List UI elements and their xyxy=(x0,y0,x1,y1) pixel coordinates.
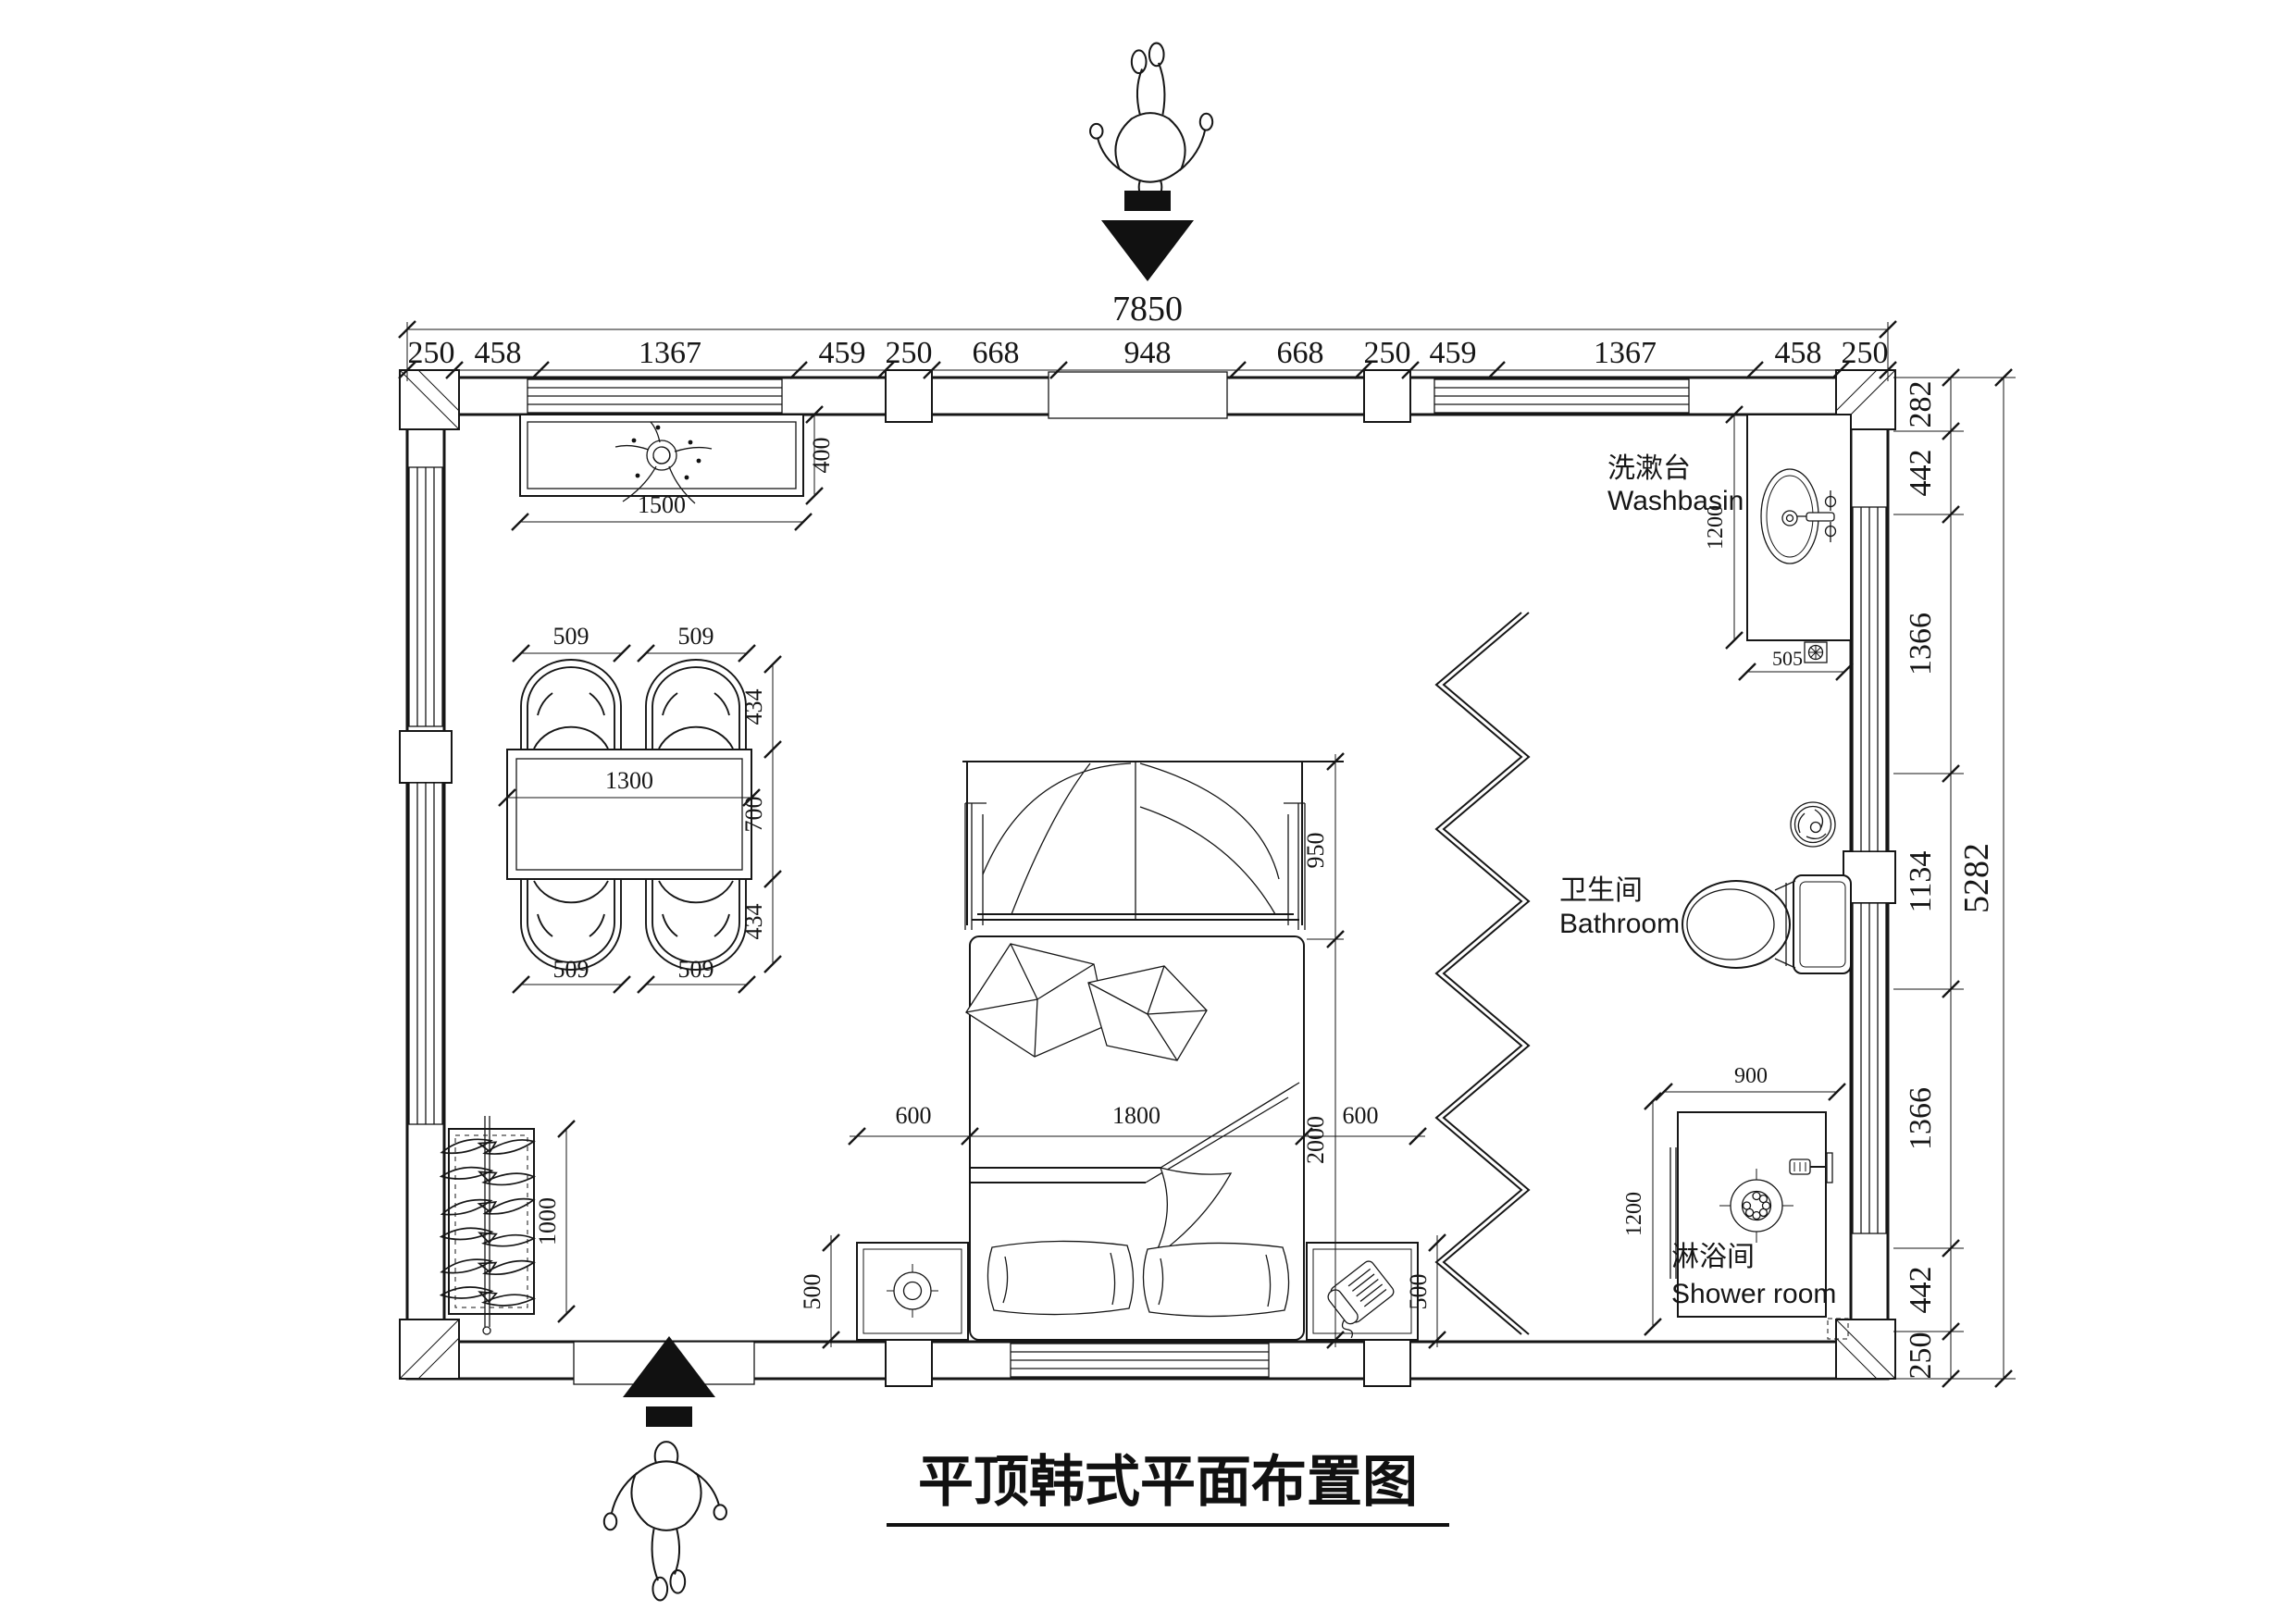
dim-dining-side: 434 xyxy=(740,689,767,725)
dim-top-seg: 668 xyxy=(973,336,1020,370)
dim-top-seg: 250 xyxy=(1364,336,1411,370)
dim-top-seg: 458 xyxy=(475,336,522,370)
dim-nightstand-left-width: 600 xyxy=(896,1102,932,1129)
dim-nightstand-right-width: 600 xyxy=(1343,1102,1379,1129)
room-label-shower-zh: 淋浴间 xyxy=(1671,1242,1755,1272)
dim-table-width: 1300 xyxy=(605,767,653,794)
dim-cabinet-width: 1500 xyxy=(638,491,686,518)
dim-nightstand-left-depth: 500 xyxy=(799,1274,825,1310)
bed xyxy=(966,936,1304,1340)
dim-right-seg: 442 xyxy=(1904,450,1938,497)
floor-drain-icon xyxy=(1805,642,1827,663)
room-label-bathroom-en: Bathroom xyxy=(1559,909,1680,939)
dim-rack-height: 1000 xyxy=(534,1197,561,1245)
floor-plan-canvas: 7850 250 458 1367 459 250 668 948 668 25… xyxy=(0,0,2296,1623)
dim-shower-depth: 1200 xyxy=(1622,1192,1646,1236)
dim-right-seg: 1134 xyxy=(1904,851,1938,913)
dim-chair: 509 xyxy=(678,623,714,650)
toilet-icon xyxy=(1682,875,1851,973)
top-entry-door-opening xyxy=(1049,372,1227,418)
drawing-title: 平顶韩式平面布置图 xyxy=(918,1451,1418,1513)
dim-basin-drain: 505 xyxy=(1772,647,1803,670)
dim-right-total: 5282 xyxy=(1957,843,1996,913)
dim-top-seg: 1367 xyxy=(1594,336,1657,370)
dim-top-seg: 250 xyxy=(886,336,933,370)
dim-chair: 509 xyxy=(553,623,590,650)
dim-shower-width: 900 xyxy=(1734,1064,1768,1088)
right-dimension-chain: 282 442 1366 1134 1366 442 250 5282 xyxy=(1893,369,2016,1387)
room-label-shower-en: Shower room xyxy=(1671,1279,1836,1309)
nightstand-left xyxy=(857,1243,968,1340)
dim-bed-width: 1800 xyxy=(1112,1102,1160,1129)
dim-right-seg: 1366 xyxy=(1904,613,1938,675)
down-arrow-icon xyxy=(1101,191,1194,281)
dim-top-seg: 459 xyxy=(819,336,866,370)
dim-dining-side: 700 xyxy=(740,797,767,833)
dim-top-seg: 250 xyxy=(1842,336,1889,370)
top-dimension-chain: 7850 250 458 1367 459 250 668 948 668 25… xyxy=(399,290,1896,381)
dim-cabinet-depth: 400 xyxy=(808,438,835,474)
dim-right-seg: 282 xyxy=(1904,381,1938,428)
person-icon xyxy=(1090,43,1212,202)
dim-chair: 509 xyxy=(678,956,714,983)
dim-bed-length: 2000 xyxy=(1302,1116,1329,1164)
dim-top-seg: 948 xyxy=(1124,336,1172,370)
room-label-washbasin-zh: 洗漱台 xyxy=(1607,453,1691,484)
drawing-title-block: 平顶韩式平面布置图 xyxy=(887,1451,1449,1525)
dim-top-seg: 668 xyxy=(1277,336,1324,370)
floor-plan-page: 7850 250 458 1367 459 250 668 948 668 25… xyxy=(0,0,2296,1623)
dim-top-seg: 458 xyxy=(1775,336,1822,370)
person-icon xyxy=(604,1442,726,1600)
room-label-washbasin-en: Washbasin xyxy=(1607,486,1744,516)
dim-dining-side: 434 xyxy=(740,904,767,940)
dim-chair: 509 xyxy=(553,956,590,983)
dim-nightstand-right-depth: 500 xyxy=(1405,1274,1432,1310)
dim-right-seg: 442 xyxy=(1904,1267,1938,1314)
dim-right-seg: 1366 xyxy=(1904,1087,1938,1150)
dim-top-seg: 250 xyxy=(408,336,455,370)
dim-top-seg: 459 xyxy=(1430,336,1477,370)
entry-top xyxy=(1090,43,1212,281)
nightstand-right xyxy=(1307,1243,1418,1340)
dim-top-total: 7850 xyxy=(1112,290,1183,328)
room-label-bathroom-zh: 卫生间 xyxy=(1559,875,1643,906)
dim-right-seg: 250 xyxy=(1904,1332,1938,1380)
dim-top-seg: 1367 xyxy=(639,336,701,370)
dim-bed-canopy: 950 xyxy=(1302,833,1329,869)
